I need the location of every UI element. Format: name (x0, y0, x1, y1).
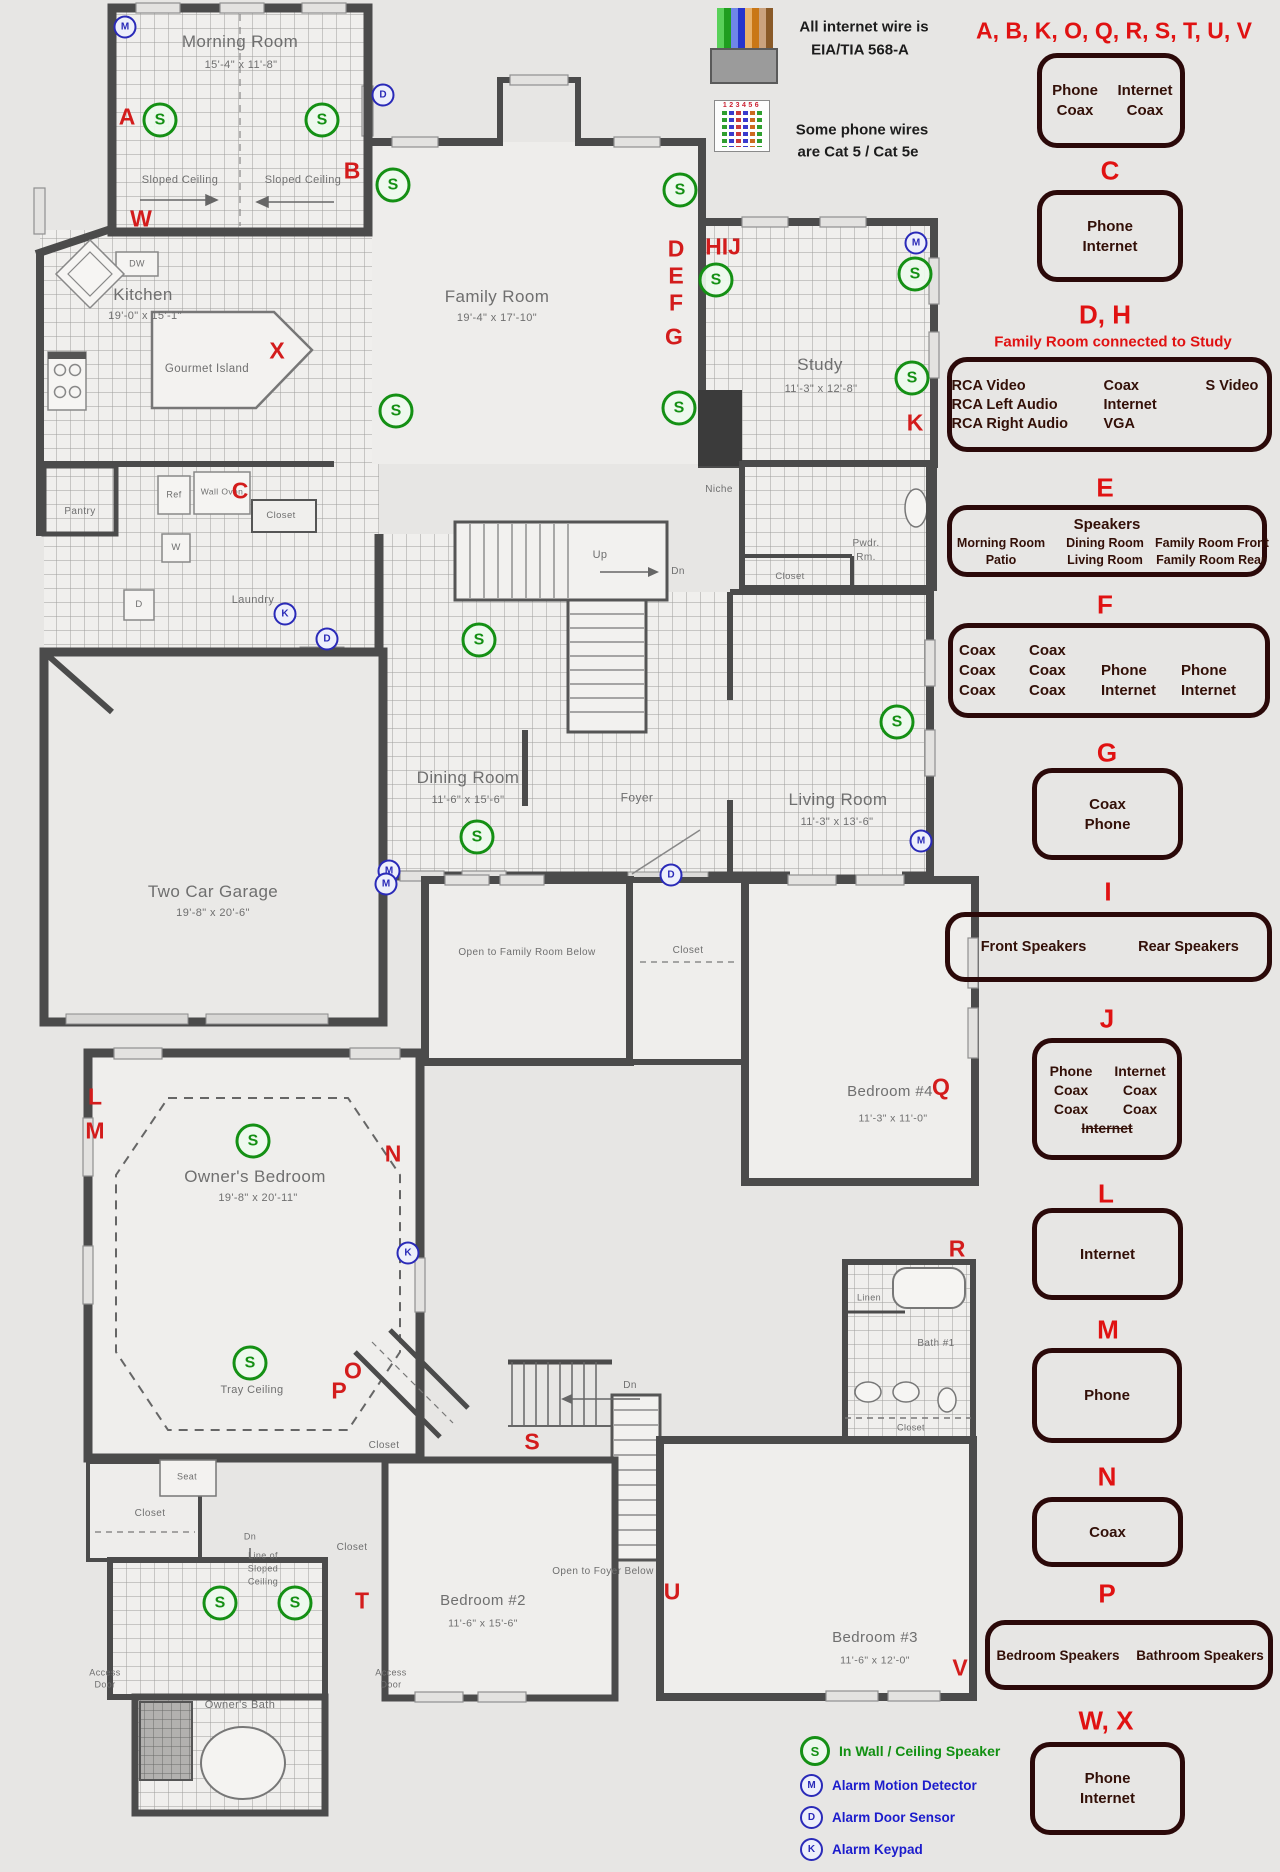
symbol-key-row-S: SIn Wall / Ceiling Speaker (800, 1736, 1000, 1766)
rj45-connector-graphic: 123456 (714, 100, 770, 152)
floor2-room-label: Dn (623, 1381, 637, 1392)
floor1-wire-drop-letter-D: D (668, 236, 685, 263)
floor1-wire-drop-letter-G: G (665, 324, 683, 351)
legend-box-cell (1101, 642, 1181, 659)
floor2-room-label: Bedroom #4 (847, 1084, 933, 1100)
floor2-room-label: 11'-6" x 12'-0" (840, 1655, 910, 1666)
floor2-room-label: Access (375, 1668, 406, 1677)
floor1-room-label: Family Room (445, 288, 550, 306)
phone-wire-note-line1: Some phone wires (796, 122, 929, 139)
floor2-wire-drop-letter-Q: Q (932, 1074, 950, 1101)
legend-box-cell: Phone (1181, 662, 1259, 679)
floor2-room-label: Sloped (248, 1564, 278, 1573)
legend-box-cell: Phone (1101, 662, 1181, 679)
legend-box-i: Front SpeakersRear Speakers (945, 912, 1272, 982)
floor1-speaker-marker: S (898, 257, 933, 292)
floor2-wire-drop-letter-R: R (949, 1236, 966, 1263)
floor2-room-label: Owner's Bedroom (184, 1168, 326, 1186)
floor1-alarm-marker-K: K (274, 603, 297, 626)
floor1-room-label: Foyer (621, 792, 654, 805)
legend-box-cell: VGA (1104, 416, 1206, 432)
legend-box-cell: Internet (1104, 397, 1206, 413)
floor2-room-label: Closet (369, 1441, 400, 1452)
legend-box-cell: Coax (1029, 682, 1101, 699)
floor1-room-label: Sloped Ceiling (265, 175, 342, 187)
floor1-room-label: Dn (671, 567, 685, 578)
legend-box-cell: Internet (1104, 1063, 1176, 1079)
legend-section-letter-dh: D, H (1079, 300, 1131, 331)
legend-section-letter-c: C (1101, 156, 1120, 187)
floor2-room-label: Closet (897, 1423, 925, 1432)
legend-section-letter-e: E (1096, 473, 1113, 504)
legend-box-cell: Internet (1080, 1246, 1135, 1263)
floor2-room-label: 11'-3" x 11'-0" (858, 1113, 927, 1124)
legend-box-cell: S Video (1206, 378, 1268, 394)
floor2-wire-drop-letter-T: T (355, 1588, 369, 1615)
legend-box-cell: Coax (1104, 1101, 1176, 1117)
legend-box-cell (1206, 397, 1268, 413)
symbol-key-icon-S: S (800, 1736, 830, 1766)
floor1-room-label: Closet (266, 511, 295, 521)
floor1-room-label: 11'-3" x 13'-6" (801, 817, 874, 829)
rj45-pin-digits: 123456 (715, 101, 769, 110)
symbol-key-row-M: MAlarm Motion Detector (800, 1774, 977, 1797)
legend-box-cell: Bathroom Speakers (1129, 1648, 1271, 1663)
floor1-speaker-marker: S (462, 623, 497, 658)
legend-box-cell: Internet (1101, 682, 1181, 699)
symbol-key-label: Alarm Keypad (832, 1842, 923, 1857)
legend-box-l: Internet (1032, 1208, 1183, 1300)
internet-wire-note-line1: All internet wire is (799, 19, 928, 36)
legend-box-cell: Coax (1029, 642, 1101, 659)
floor2-room-label: Door (380, 1680, 401, 1689)
floor1-wire-drop-letter-B: B (344, 158, 361, 185)
floor1-room-label: Sloped Ceiling (142, 175, 219, 187)
symbol-key-icon-M: M (800, 1774, 823, 1797)
legend-box-p: Bedroom SpeakersBathroom Speakers (985, 1620, 1273, 1690)
floor2-room-label: Seat (177, 1472, 197, 1481)
legend-box-cell: Rear Speakers (1114, 939, 1264, 955)
floor2-room-label: Closet (337, 1543, 368, 1554)
floor2-wire-drop-letter-M: M (85, 1118, 104, 1145)
floor1-room-label: D (135, 600, 142, 610)
symbol-key-label: Alarm Door Sensor (832, 1810, 955, 1825)
floor1-speaker-marker: S (460, 820, 495, 855)
floor1-speaker-marker: S (376, 168, 411, 203)
floor2-room-label: 11'-6" x 15'-6" (448, 1618, 518, 1629)
floor1-wire-drop-letter-X: X (269, 338, 284, 365)
legend-box-n: Coax (1032, 1497, 1183, 1567)
legend-header-letters: A, B, K, O, Q, R, S, T, U, V (976, 18, 1252, 45)
floor1-wire-drop-letter-K: K (907, 410, 924, 437)
floor1-alarm-marker-D: D (316, 628, 339, 651)
floor2-room-label: Bedroom #3 (832, 1630, 918, 1646)
floor2-room-label: Dn (244, 1532, 256, 1541)
floor1-room-label: Pwdr. (852, 539, 879, 550)
legend-box-cell: Front Speakers (954, 939, 1114, 955)
floor1-room-label: Niche (705, 485, 733, 496)
legend-box-cell: Coax (1038, 1082, 1104, 1098)
floor1-wire-drop-letter-E: E (668, 263, 683, 290)
floor2-room-label: Bedroom #2 (440, 1593, 526, 1609)
legend-box-cell: Coax (1104, 378, 1206, 394)
legend-box-cell: Internet (1181, 682, 1259, 699)
legend-box-cell: Phone (1085, 816, 1131, 833)
legend-box-j: PhoneInternetCoaxCoaxCoaxCoaxInternet (1032, 1038, 1182, 1160)
floor2-wire-drop-letter-P: P (331, 1378, 346, 1405)
floor1-room-label: 19'-0" x 15'-1" (108, 311, 182, 323)
floor1-room-label: Closet (775, 572, 804, 582)
floor2-room-label: Bath #1 (917, 1339, 954, 1350)
legend-box-cell: RCA Left Audio (952, 397, 1104, 413)
floor1-room-label: 11'-3" x 12'-8" (785, 384, 858, 396)
legend-box-cell (1181, 642, 1259, 659)
legend-box-cell: Coax (1041, 102, 1109, 119)
symbol-key-row-K: KAlarm Keypad (800, 1838, 923, 1861)
floor1-speaker-marker: S (662, 391, 697, 426)
floor1-room-label: 19'-8" x 20'-6" (176, 908, 250, 920)
legend-box-cell (1206, 416, 1268, 432)
legend-box-cell: Morning Room (947, 536, 1055, 550)
floor1-room-label: 11'-6" x 15'-6" (432, 795, 505, 807)
floor1-speaker-marker: S (663, 173, 698, 208)
floor1-wire-drop-letter-A: A (119, 104, 136, 131)
floor1-speaker-marker: S (143, 103, 178, 138)
legend-box-g: CoaxPhone (1032, 768, 1183, 860)
floor1-room-label: 19'-4" x 17'-10" (457, 313, 537, 325)
legend-box-e: SpeakersMorning RoomDining RoomFamily Ro… (947, 505, 1267, 577)
floor1-alarm-marker-D: D (372, 84, 395, 107)
floor1-wire-drop-letter-HIJ: HIJ (705, 234, 741, 261)
legend-box-cell: Coax (1089, 1524, 1126, 1541)
legend-box-cell: Internet (1109, 82, 1181, 99)
floor1-speaker-marker: S (895, 361, 930, 396)
floor2-speaker-marker: S (233, 1346, 268, 1381)
legend-box-cell: Coax (1089, 796, 1126, 813)
floor1-room-label: Living Room (789, 791, 888, 809)
legend-box-cell: Phone (1084, 1387, 1130, 1404)
legend-section-letter-wx: W, X (1079, 1706, 1134, 1737)
rj45-wire-stripes (715, 111, 769, 147)
floor1-room-label: Laundry (232, 595, 275, 607)
legend-box-cell: Coax (959, 642, 1029, 659)
floor2-alarm-marker-M: M (375, 873, 398, 896)
floor1-room-label: Pantry (64, 507, 95, 518)
floor1-speaker-marker: S (379, 394, 414, 429)
legend-box-cell: Coax (959, 682, 1029, 699)
symbol-key-label: Alarm Motion Detector (832, 1778, 977, 1793)
legend-box-c: PhoneInternet (1037, 190, 1183, 282)
wire-stripes (717, 8, 773, 50)
floor2-speaker-marker: S (278, 1586, 313, 1621)
floor2-room-label: Open to Foyer Below (552, 1567, 654, 1578)
legend-box-cell: Dining Room (1055, 536, 1155, 550)
floor1-room-label: Gourmet Island (165, 363, 249, 375)
legend-box-cell: Bedroom Speakers (987, 1648, 1129, 1663)
legend-box-cell: Internet (1080, 1790, 1135, 1807)
floor2-room-label: Closet (673, 946, 704, 957)
floor1-wire-drop-letter-W: W (130, 206, 152, 233)
floor2-room-label: Owner's Bath (205, 1700, 275, 1712)
floor1-speaker-marker: S (880, 705, 915, 740)
floor2-speaker-marker: S (203, 1586, 238, 1621)
floor2-speaker-marker: S (236, 1124, 271, 1159)
legend-section-subtitle-dh: Family Room connected to Study (994, 334, 1232, 351)
legend-box-abkoqrstuv: PhoneInternetCoaxCoax (1037, 53, 1185, 148)
symbol-key-icon-D: D (800, 1806, 823, 1829)
floor1-room-label: Up (593, 550, 608, 562)
floor1-alarm-marker-M: M (114, 16, 137, 39)
eia-568a-wire-graphic (710, 6, 780, 84)
legend-box-dh: RCA VideoCoaxS VideoRCA Left AudioIntern… (947, 357, 1272, 452)
floor1-room-label: Kitchen (113, 286, 173, 304)
floor1-room-label: Ref (166, 490, 181, 499)
floor2-room-label: Open to Family Room Below (458, 948, 595, 959)
legend-box-cell: Living Room (1055, 553, 1155, 567)
floor1-room-label: Morning Room (182, 33, 298, 51)
wiring-floorplan-page: All internet wire is EIA/TIA 568-A 12345… (0, 0, 1280, 1872)
legend-section-letter-j: J (1100, 1004, 1114, 1035)
floor1-wire-drop-letter-F: F (669, 290, 683, 317)
floor2-wire-drop-letter-V: V (952, 1655, 967, 1682)
symbol-key-label: In Wall / Ceiling Speaker (839, 1743, 1000, 1759)
legend-box-cell: Coax (1109, 102, 1181, 119)
floor1-room-label: Two Car Garage (148, 883, 278, 901)
floor1-alarm-marker-M: M (905, 232, 928, 255)
floor1-wire-drop-letter-C: C (232, 478, 249, 505)
legend-box-title-e: Speakers (1074, 516, 1141, 533)
legend-section-letter-n: N (1098, 1462, 1117, 1493)
floor2-wire-drop-letter-L: L (88, 1084, 102, 1111)
floor1-alarm-marker-M: M (910, 830, 933, 853)
legend-section-letter-p: P (1098, 1579, 1115, 1610)
phone-wire-note-line2: are Cat 5 / Cat 5e (798, 144, 919, 161)
floor1-alarm-marker-D: D (660, 864, 683, 887)
floor1-speaker-marker: S (699, 263, 734, 298)
legend-box-cell: Family Room Rear (1155, 553, 1267, 567)
legend-section-letter-m: M (1097, 1315, 1119, 1346)
floor2-room-label: Door (94, 1680, 115, 1689)
legend-section-letter-i: I (1104, 877, 1111, 908)
legend-section-letter-l: L (1098, 1179, 1114, 1210)
floor2-wire-drop-letter-U: U (664, 1579, 681, 1606)
legend-box-cell: Coax (1029, 662, 1101, 679)
wire-jacket (710, 48, 778, 84)
floor1-room-label: 15'-4" x 11'-8" (205, 60, 278, 72)
floor2-wire-drop-letter-O: O (344, 1358, 362, 1385)
legend-box-cell: Coax (1038, 1101, 1104, 1117)
floor2-room-label: 19'-8" x 20'-11" (218, 1193, 297, 1205)
symbol-key-row-D: DAlarm Door Sensor (800, 1806, 955, 1829)
legend-box-wx: PhoneInternet (1030, 1742, 1185, 1835)
legend-box-cell: Phone (1041, 82, 1109, 99)
legend-box-cell: Phone (1087, 218, 1133, 235)
floor1-speaker-marker: S (305, 103, 340, 138)
floor2-alarm-marker-K: K (397, 1242, 420, 1265)
legend-box-cell: Phone (1085, 1770, 1131, 1787)
floor2-room-label: Closet (135, 1509, 166, 1520)
internet-wire-note-line2: EIA/TIA 568-A (811, 42, 909, 59)
floor1-room-label: Study (797, 356, 842, 374)
floor2-wire-drop-letter-S: S (524, 1429, 539, 1456)
legend-box-f: CoaxCoaxCoaxCoaxPhonePhoneCoaxCoaxIntern… (948, 623, 1270, 718)
floor1-room-label: Rm. (856, 553, 876, 564)
legend-box-cell: Internet (1082, 238, 1137, 255)
legend-box-cell: RCA Right Audio (952, 416, 1104, 432)
floor2-wire-drop-letter-N: N (385, 1141, 402, 1168)
legend-box-cell: Coax (1104, 1082, 1176, 1098)
floor2-room-label: Line of (248, 1551, 278, 1560)
floor2-room-label: Tray Ceiling (220, 1385, 283, 1397)
legend-section-letter-f: F (1097, 590, 1113, 621)
legend-section-letter-g: G (1097, 738, 1117, 769)
legend-box-cell: Family Room Front (1155, 536, 1267, 550)
floor1-room-label: Dining Room (417, 769, 520, 787)
legend-box-m: Phone (1032, 1348, 1182, 1443)
floor1-room-label: W (171, 543, 180, 553)
floor2-room-label: Access (89, 1668, 120, 1677)
floor2-room-label: Ceiling (248, 1577, 278, 1586)
legend-box-cell: Internet (1074, 1120, 1140, 1136)
floor2-room-label: Linen (857, 1293, 881, 1302)
symbol-key-icon-K: K (800, 1838, 823, 1861)
floor1-room-label: DW (129, 259, 145, 268)
legend-box-cell: RCA Video (952, 378, 1104, 394)
legend-box-cell: Coax (959, 662, 1029, 679)
legend-box-cell: Phone (1038, 1063, 1104, 1079)
legend-box-cell: Patio (947, 553, 1055, 567)
